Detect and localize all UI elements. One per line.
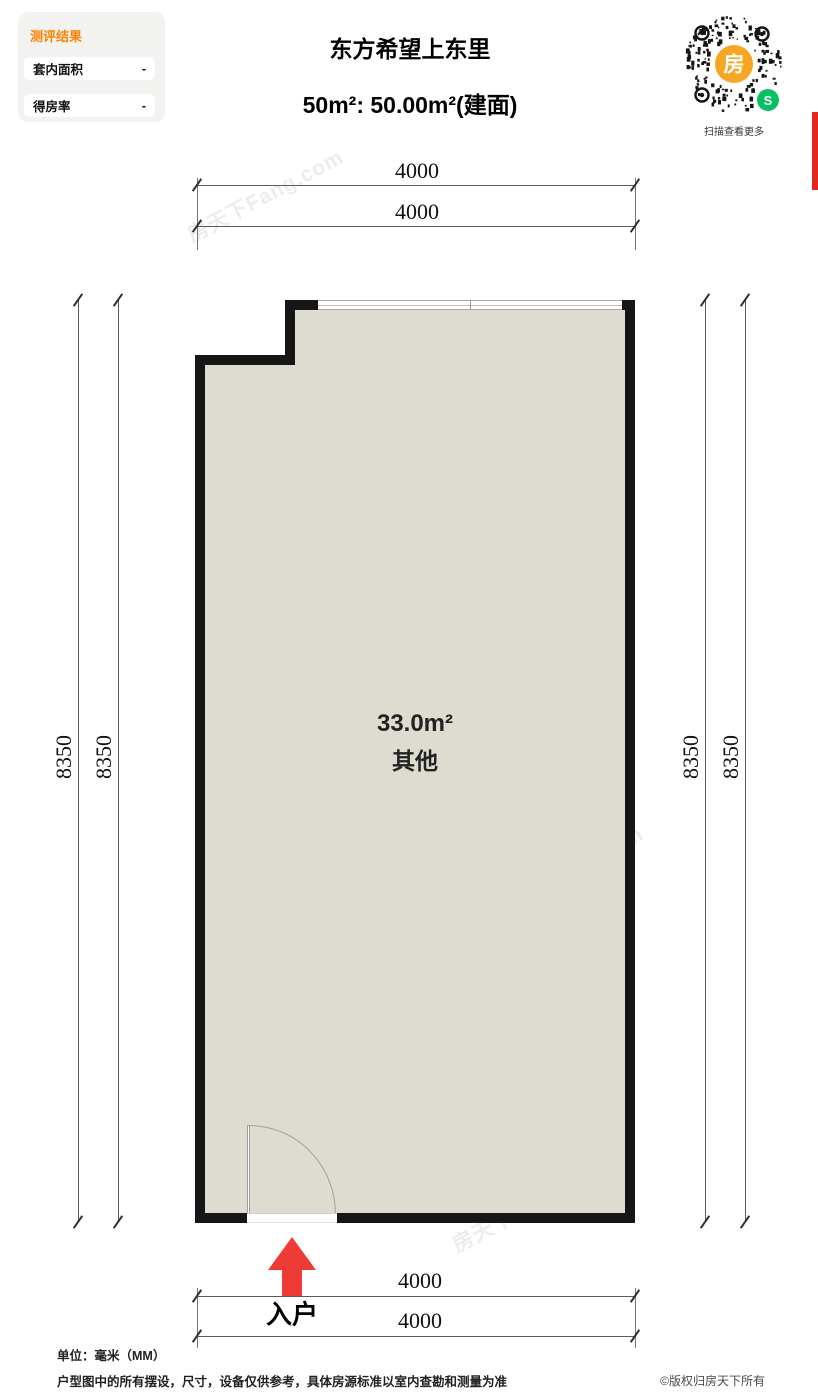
dimension-line <box>705 300 706 1222</box>
eval-row-value: - <box>142 99 146 113</box>
qr-caption: 扫描查看更多 <box>684 123 784 138</box>
wechat-logo-glyph: S <box>764 93 773 108</box>
door-leaf <box>247 1125 250 1215</box>
wall-left <box>195 355 205 1223</box>
entry-arrow-icon <box>260 1235 324 1299</box>
unit-note: 单位：毫米（MM） <box>57 1345 165 1364</box>
room-area-text: 33.0m² <box>195 710 635 738</box>
watermark: 房天下Fang.com <box>182 141 349 249</box>
qr-center-glyph: 房 <box>724 53 745 77</box>
side-red-bar <box>812 112 818 190</box>
dim-label-right-outer: 8350 <box>718 735 744 779</box>
dimension-line <box>745 300 746 1222</box>
dim-label-bottom-outer: 4000 <box>398 1308 442 1334</box>
window-symbol <box>318 300 622 310</box>
dim-label-left-inner: 8350 <box>91 735 117 779</box>
dim-label-top-inner: 4000 <box>395 199 439 225</box>
qr-code: 房 S <box>684 14 784 114</box>
eval-row-ratio: 得房率 - <box>24 94 155 117</box>
extension-line <box>635 178 636 250</box>
dim-label-top-outer: 4000 <box>395 158 439 184</box>
evaluation-panel: 测评结果 套内面积 - 得房率 - <box>18 12 165 122</box>
dimension-line <box>197 1336 635 1337</box>
eval-row-label: 得房率 <box>33 96 71 115</box>
door-opening <box>247 1213 337 1223</box>
room-name-text: 其他 <box>195 742 635 776</box>
eval-row-label: 套内面积 <box>33 59 83 78</box>
extension-line <box>197 178 198 250</box>
dimension-line <box>78 300 79 1222</box>
dimension-line <box>118 300 119 1222</box>
evaluation-panel-title: 测评结果 <box>30 26 82 45</box>
wall-notch-horizontal <box>195 355 295 365</box>
floorplan-page: 房天下Fang.com 房天下Fang.com 房天下Fang.com 房天下F… <box>0 0 818 1400</box>
dim-label-right-inner: 8350 <box>678 735 704 779</box>
entry-label: 入户 <box>266 1295 318 1332</box>
dim-label-bottom-inner: 4000 <box>398 1268 442 1294</box>
disclaimer: 户型图中的所有摆设，尺寸，设备仅供参考，具体房源标准以室内查勘和测量为准 <box>57 1371 507 1390</box>
copyright: ©版权归房天下所有 <box>660 1372 765 1389</box>
dimension-line <box>197 226 635 227</box>
page-title: 东方希望上东里 <box>165 30 655 64</box>
floor-plan: 33.0m² 其他 <box>195 300 635 1223</box>
eval-row-value: - <box>142 62 146 76</box>
room-label: 33.0m² 其他 <box>195 710 635 776</box>
qr-code-graphic: 房 S <box>684 14 784 114</box>
area-subtitle: 50m²: 50.00m²(建面) <box>165 86 655 120</box>
dim-label-left-outer: 8350 <box>51 735 77 779</box>
dimension-line <box>197 185 635 186</box>
eval-row-inner-area: 套内面积 - <box>24 57 155 80</box>
